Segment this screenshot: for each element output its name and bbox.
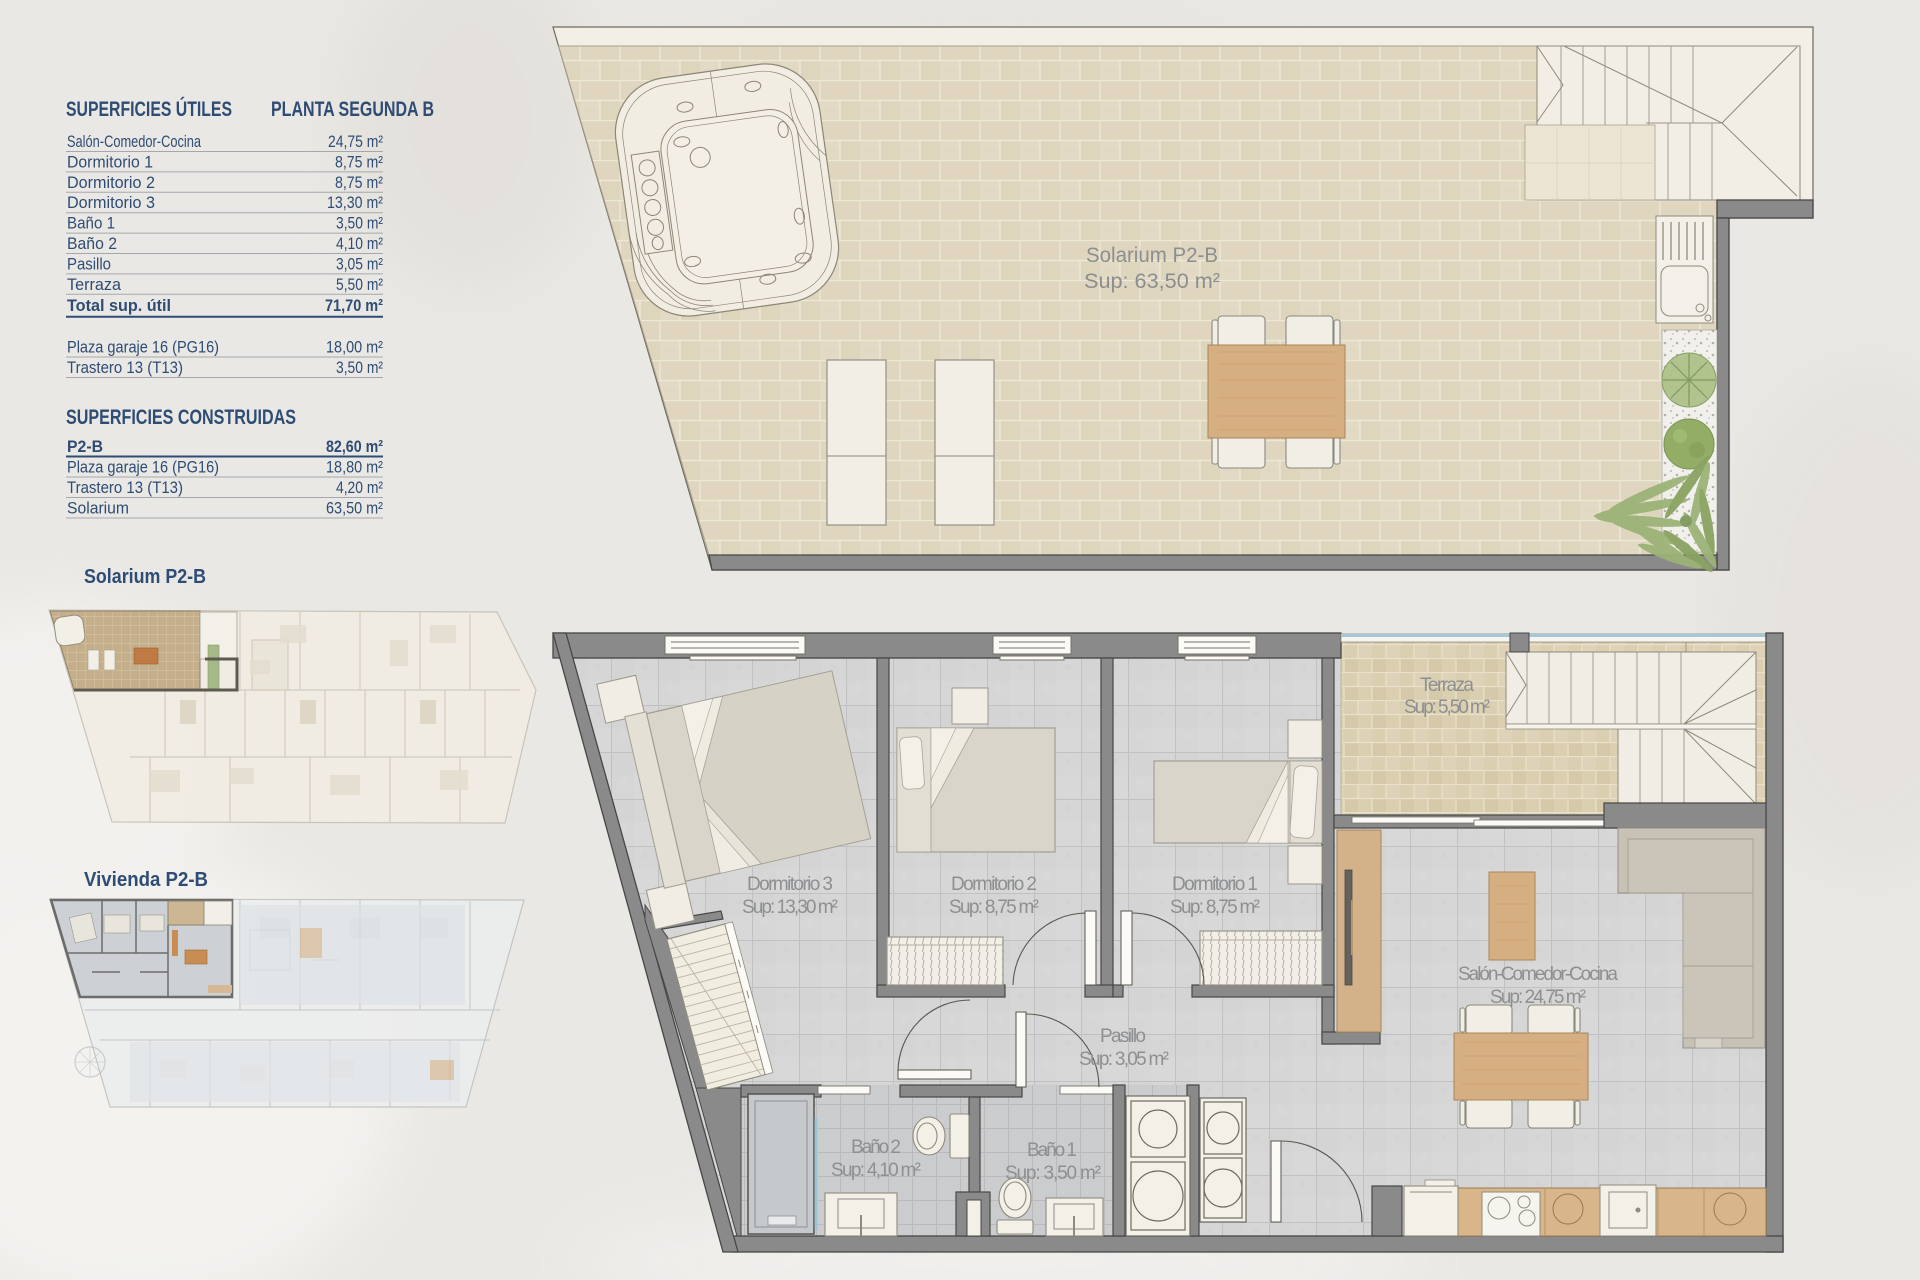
svg-text:Trastero 13 (T13): Trastero 13 (T13) (67, 478, 183, 497)
svg-text:Dormitorio 3: Dormitorio 3 (67, 193, 155, 212)
svg-text:SUPERFICIES CONSTRUIDAS: SUPERFICIES CONSTRUIDAS (66, 406, 296, 429)
svg-text:Baño 1: Baño 1 (1027, 1140, 1077, 1161)
svg-text:Terraza: Terraza (1420, 675, 1474, 696)
svg-text:Sup: 13,30 m²: Sup: 13,30 m² (742, 897, 838, 918)
svg-text:SUPERFICIES ÚTILES: SUPERFICIES ÚTILES (66, 97, 232, 121)
svg-text:Salón-Comedor-Cocina: Salón-Comedor-Cocina (1458, 964, 1618, 985)
svg-text:71,70 m²: 71,70 m² (325, 296, 383, 315)
svg-text:Solarium P2-B: Solarium P2-B (84, 566, 206, 588)
svg-text:Dormitorio 2: Dormitorio 2 (951, 874, 1037, 895)
svg-text:Dormitorio 2: Dormitorio 2 (67, 173, 155, 192)
svg-text:3,05 m²: 3,05 m² (336, 254, 383, 273)
svg-text:Plaza garaje 16 (PG16): Plaza garaje 16 (PG16) (67, 458, 219, 477)
svg-text:Solarium P2-B: Solarium P2-B (1086, 244, 1218, 267)
svg-text:18,00 m²: 18,00 m² (326, 338, 383, 357)
svg-text:Dormitorio 1: Dormitorio 1 (1172, 874, 1258, 895)
svg-text:Sup: 24,75 m²: Sup: 24,75 m² (1490, 987, 1586, 1008)
svg-text:Sup: 63,50 m²: Sup: 63,50 m² (1084, 270, 1220, 293)
svg-text:Terraza: Terraza (67, 275, 122, 294)
svg-text:4,10 m²: 4,10 m² (336, 234, 383, 253)
svg-text:5,50 m²: 5,50 m² (336, 275, 383, 294)
svg-text:Pasillo: Pasillo (1100, 1026, 1146, 1047)
svg-text:3,50 m²: 3,50 m² (336, 358, 383, 377)
svg-text:Sup: 8,75 m²: Sup: 8,75 m² (949, 897, 1039, 918)
svg-text:Sup: 8,75 m²: Sup: 8,75 m² (1170, 897, 1260, 918)
svg-text:Sup: 5,50 m²: Sup: 5,50 m² (1404, 697, 1490, 718)
svg-text:24,75 m²: 24,75 m² (328, 132, 383, 151)
svg-text:63,50 m²: 63,50 m² (326, 499, 383, 518)
svg-text:4,20 m²: 4,20 m² (336, 478, 383, 497)
svg-text:Dormitorio 1: Dormitorio 1 (67, 152, 153, 171)
svg-text:Trastero 13 (T13): Trastero 13 (T13) (67, 358, 183, 377)
svg-text:Pasillo: Pasillo (67, 254, 111, 273)
svg-text:Baño 1: Baño 1 (67, 214, 115, 233)
svg-text:8,75 m²: 8,75 m² (335, 173, 383, 192)
svg-text:Baño 2: Baño 2 (67, 234, 117, 253)
svg-text:8,75 m²: 8,75 m² (335, 152, 383, 171)
svg-text:Baño 2: Baño 2 (851, 1137, 901, 1158)
svg-text:18,80 m²: 18,80 m² (326, 458, 383, 477)
svg-text:3,50 m²: 3,50 m² (336, 214, 383, 233)
svg-text:82,60 m²: 82,60 m² (326, 437, 383, 456)
svg-text:Sup: 3,05 m²: Sup: 3,05 m² (1079, 1049, 1169, 1070)
svg-text:Total sup. útil: Total sup. útil (67, 296, 171, 315)
svg-text:Dormitorio 3: Dormitorio 3 (747, 874, 833, 895)
svg-text:P2-B: P2-B (67, 437, 103, 456)
svg-text:Salón-Comedor-Cocina: Salón-Comedor-Cocina (67, 132, 201, 151)
svg-text:PLANTA SEGUNDA B: PLANTA SEGUNDA B (271, 98, 434, 121)
svg-text:Sup: 4,10 m²: Sup: 4,10 m² (831, 1160, 921, 1181)
svg-text:Plaza garaje 16 (PG16): Plaza garaje 16 (PG16) (67, 338, 219, 357)
svg-text:13,30 m²: 13,30 m² (327, 193, 383, 212)
svg-text:Sup: 3,50 m²: Sup: 3,50 m² (1005, 1163, 1101, 1184)
svg-text:Vivienda P2-B: Vivienda P2-B (84, 869, 208, 891)
svg-text:Solarium: Solarium (67, 499, 129, 518)
